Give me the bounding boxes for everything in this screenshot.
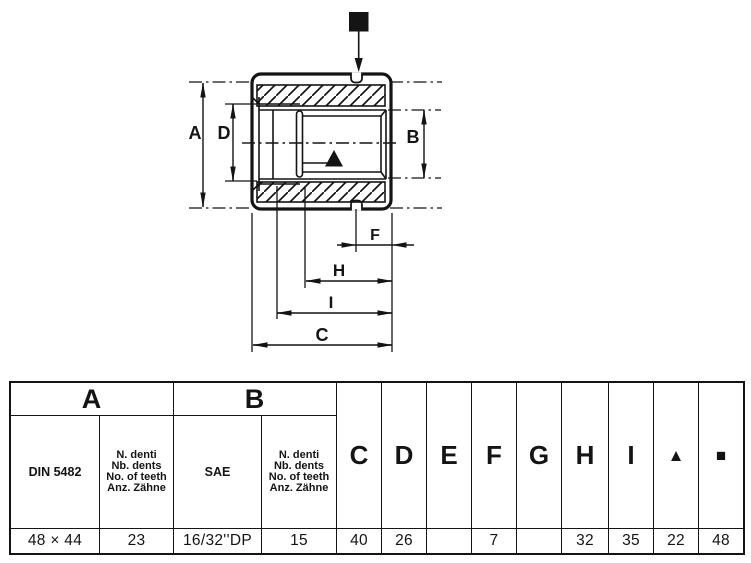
technical-drawing: A D B F H I C bbox=[0, 0, 751, 380]
table-header-f: F bbox=[471, 383, 516, 528]
dim-label-f: F bbox=[370, 227, 380, 244]
dim-label-i: I bbox=[329, 293, 334, 312]
dim-label-c: C bbox=[316, 325, 329, 345]
value-teeth-b: 15 bbox=[261, 528, 336, 553]
inner-geometry bbox=[253, 97, 386, 191]
dim-label-a: A bbox=[189, 123, 202, 143]
value-g bbox=[516, 528, 561, 553]
value-triangle: 22 bbox=[653, 528, 698, 553]
table-header-group-a: A bbox=[11, 383, 173, 415]
teeth-line: Anz. Zähne bbox=[107, 483, 166, 494]
value-c: 40 bbox=[336, 528, 381, 553]
table-header-c: C bbox=[336, 383, 381, 528]
teeth-line: Anz. Zähne bbox=[270, 483, 329, 494]
header-din-5482: DIN 5482 bbox=[11, 415, 99, 528]
dim-label-h: H bbox=[333, 261, 345, 280]
value-i: 35 bbox=[608, 528, 653, 553]
table-header-i: I bbox=[608, 383, 653, 528]
table-header-group-b: B bbox=[173, 383, 336, 415]
value-h: 32 bbox=[561, 528, 608, 553]
dim-label-b: B bbox=[407, 127, 420, 147]
extension-lines bbox=[225, 104, 392, 352]
value-e bbox=[426, 528, 471, 553]
table-header-d: D bbox=[381, 383, 426, 528]
table-header-g: G bbox=[516, 383, 561, 528]
catalog-page: A D B F H I C A B DIN 5482 N. denti Nb. … bbox=[0, 0, 751, 563]
top-slot bbox=[351, 73, 362, 83]
header-sae: SAE bbox=[173, 415, 261, 528]
table-header-triangle: ▲ bbox=[653, 383, 698, 528]
table-header-square: ■ bbox=[698, 383, 743, 528]
header-teeth-b: N. denti Nb. dents No. of teeth Anz. Zäh… bbox=[261, 415, 336, 528]
value-din: 48 × 44 bbox=[11, 528, 99, 553]
triangle-marker-callout bbox=[302, 150, 343, 167]
value-square: 48 bbox=[698, 528, 743, 553]
hatch-top bbox=[257, 85, 385, 106]
triangle-marker bbox=[325, 150, 343, 167]
value-f: 7 bbox=[471, 528, 516, 553]
square-marker bbox=[349, 12, 369, 32]
value-teeth-a: 23 bbox=[99, 528, 173, 553]
value-sae: 16/32''DP bbox=[173, 528, 261, 553]
dimension-table: A B DIN 5482 N. denti Nb. dents No. of t… bbox=[9, 381, 745, 555]
hatch-bottom bbox=[257, 182, 385, 202]
square-marker-callout bbox=[349, 12, 369, 72]
dim-label-d: D bbox=[218, 123, 231, 143]
header-teeth-a: N. denti Nb. dents No. of teeth Anz. Zäh… bbox=[99, 415, 173, 528]
table-header-h: H bbox=[561, 383, 608, 528]
table-header-e: E bbox=[426, 383, 471, 528]
value-d: 26 bbox=[381, 528, 426, 553]
